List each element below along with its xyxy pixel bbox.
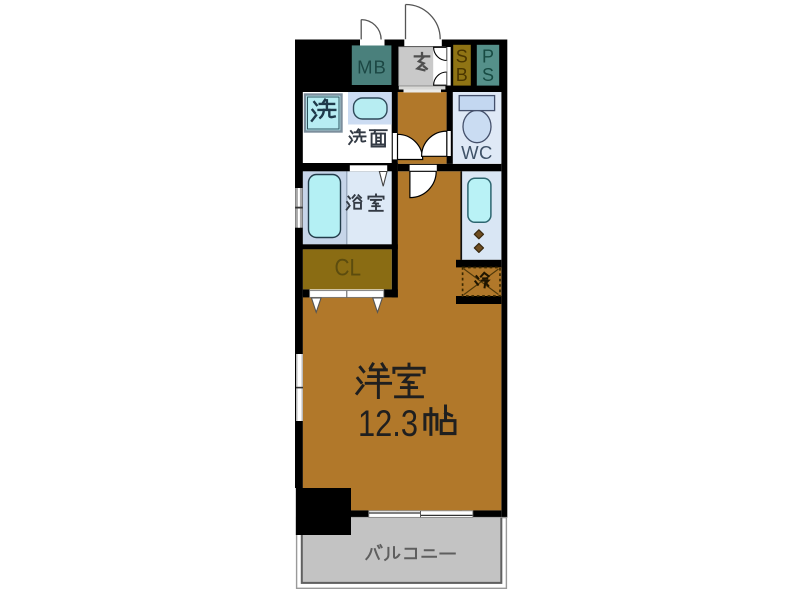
svg-text:S: S [482,65,494,85]
svg-text:12.3: 12.3 [358,403,418,444]
svg-text:P: P [482,47,494,67]
svg-text:B: B [456,65,468,85]
svg-text:S: S [456,47,468,67]
svg-text:WC: WC [461,142,493,163]
svg-text:CL: CL [335,255,362,282]
svg-text:MB: MB [357,57,387,78]
